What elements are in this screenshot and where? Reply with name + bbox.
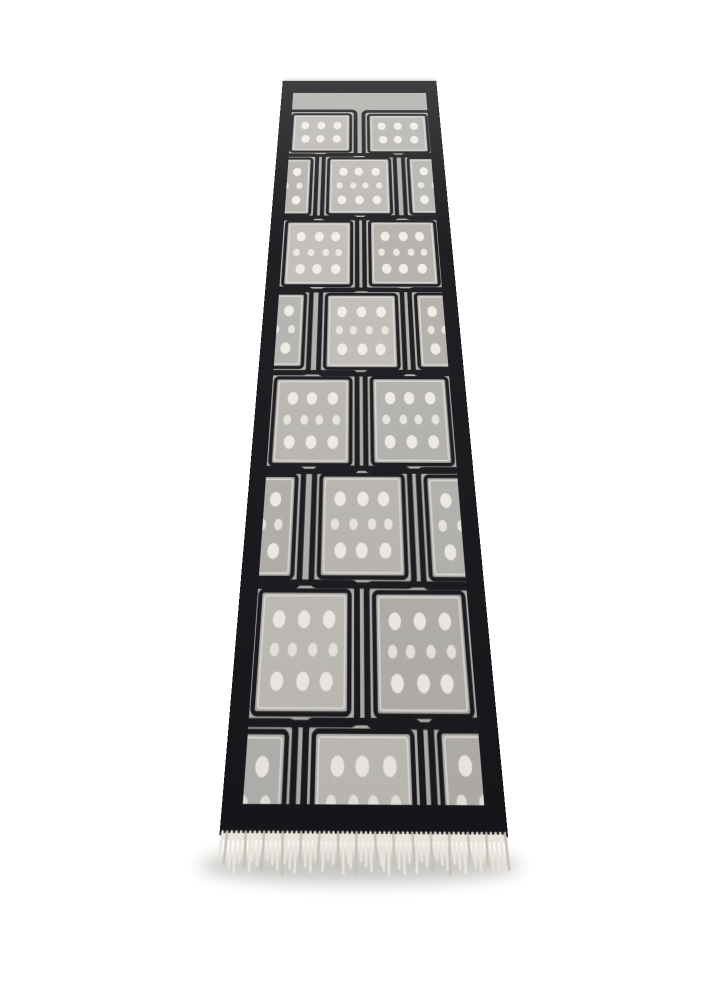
fringe xyxy=(218,832,510,876)
photo-canvas xyxy=(0,0,720,1008)
runner-rug xyxy=(216,78,512,878)
rug-pattern-svg xyxy=(216,78,512,878)
